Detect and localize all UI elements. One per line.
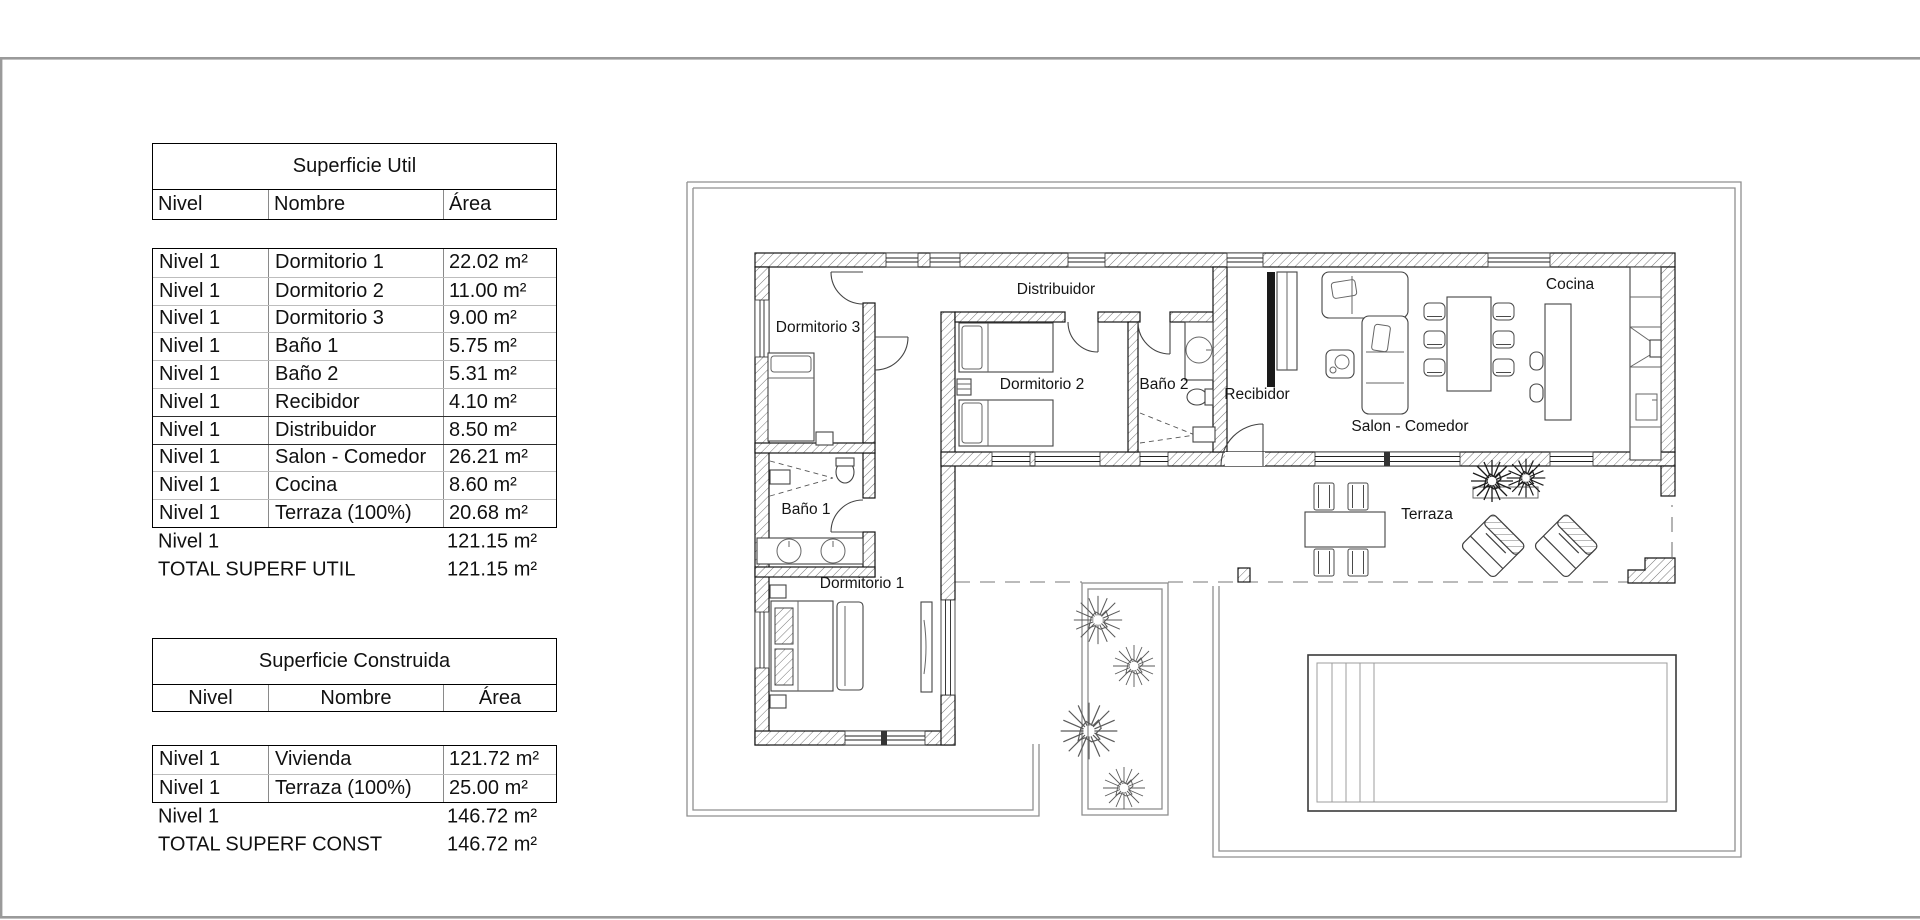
subtotal-label: Nivel 1: [158, 805, 219, 828]
sofa: [1322, 272, 1408, 414]
table-body: Nivel 1Dormitorio 122.02 m²Nivel 1Dormit…: [152, 248, 557, 528]
table-cell: Vivienda: [268, 746, 443, 774]
room-label-dormitorio-3: Dormitorio 3: [776, 319, 860, 336]
table-cell: 22.02 m²: [443, 249, 556, 277]
superficie-construida-table: Superficie Construida Nivel Nombre Área …: [152, 638, 557, 859]
table-title: Superficie Util: [152, 143, 557, 190]
table-cell: Cocina: [268, 472, 443, 499]
total-label: TOTAL SUPERF CONST: [158, 833, 382, 856]
table-header: Nivel Nombre Área: [152, 685, 557, 712]
table-row: Nivel 1Dormitorio 211.00 m²: [153, 277, 556, 305]
total-row: TOTAL SUPERF CONST 146.72 m²: [152, 831, 557, 859]
table-cell: Nivel 1: [153, 249, 268, 277]
table-row: Nivel 1Cocina8.60 m²: [153, 471, 556, 499]
column-header-nivel: Nivel: [153, 685, 268, 711]
table-cell: Dormitorio 1: [268, 249, 443, 277]
table-header: Nivel Nombre Área: [152, 190, 557, 220]
table-cell: 121.72 m²: [443, 746, 556, 774]
table-cell: Nivel 1: [153, 775, 268, 802]
column-header-nombre: Nombre: [268, 190, 443, 219]
table-cell: Nivel 1: [153, 278, 268, 305]
table-cell: Nivel 1: [153, 333, 268, 360]
table-cell: Distribuidor: [268, 417, 443, 444]
room-label-bano-1: Baño 1: [781, 501, 830, 518]
recibidor-furniture: [1267, 272, 1297, 387]
table-row: Nivel 1Distribuidor8.50 m²: [153, 416, 556, 444]
pool: [1308, 655, 1676, 811]
table-row: Nivel 1Baño 15.75 m²: [153, 332, 556, 360]
table-cell: 9.00 m²: [443, 306, 556, 333]
room-label-dormitorio-2: Dormitorio 2: [1000, 376, 1084, 393]
table-cell: 11.00 m²: [443, 278, 556, 305]
subtotal-label: Nivel 1: [158, 530, 219, 553]
table-cell: Nivel 1: [153, 500, 268, 527]
table-cell: Recibidor: [268, 389, 443, 416]
planter: [1061, 583, 1168, 815]
table-cell: Nivel 1: [153, 306, 268, 333]
total-value: 146.72 m²: [447, 833, 537, 856]
table-cell: Terraza (100%): [268, 775, 443, 802]
terrace-table: [1305, 483, 1385, 576]
table-cell: Salon - Comedor: [268, 445, 443, 472]
room-label-bano-2: Baño 2: [1139, 376, 1188, 393]
table-cell: Nivel 1: [153, 361, 268, 388]
table-cell: 8.50 m²: [443, 417, 556, 444]
room-label-salon-comedor: Salon - Comedor: [1351, 418, 1468, 435]
table-cell: Terraza (100%): [268, 500, 443, 527]
table-title: Superficie Construida: [152, 638, 557, 685]
table-row: Nivel 1Dormitorio 39.00 m²: [153, 305, 556, 333]
room-label-terraza: Terraza: [1401, 506, 1453, 523]
superficie-util-table: Superficie Util Nivel Nombre Área Nivel …: [152, 143, 557, 584]
room-label-distribuidor: Distribuidor: [1017, 281, 1095, 298]
subtotal-value: 121.15 m²: [447, 530, 537, 553]
column-header-nivel: Nivel: [153, 190, 268, 219]
table-cell: Baño 2: [268, 361, 443, 388]
table-row: Nivel 1Baño 25.31 m²: [153, 360, 556, 388]
bed-dormitorio-1: [770, 585, 932, 708]
total-value: 121.15 m²: [447, 558, 537, 581]
table-cell: Dormitorio 3: [268, 306, 443, 333]
kitchen-island: [1530, 304, 1571, 420]
table-cell: Baño 1: [268, 333, 443, 360]
table-cell: Dormitorio 2: [268, 278, 443, 305]
dining-table: [1424, 297, 1514, 391]
table-cell: Nivel 1: [153, 389, 268, 416]
column-header-area: Área: [443, 685, 556, 711]
table-cell: 25.00 m²: [443, 775, 556, 802]
table-cell: 5.75 m²: [443, 333, 556, 360]
subtotal-value: 146.72 m²: [447, 805, 537, 828]
table-cell: 4.10 m²: [443, 389, 556, 416]
table-cell: Nivel 1: [153, 472, 268, 499]
kitchen-counter: [1630, 267, 1661, 460]
table-cell: 8.60 m²: [443, 472, 556, 499]
room-label-dormitorio-1: Dormitorio 1: [820, 575, 904, 592]
room-label-cocina: Cocina: [1546, 276, 1595, 293]
column-header-nombre: Nombre: [268, 685, 443, 711]
table-row: Nivel 1Terraza (100%)20.68 m²: [153, 499, 556, 527]
floor-lamp: [1326, 350, 1354, 378]
table-cell: Nivel 1: [153, 445, 268, 472]
column-header-area: Área: [443, 190, 556, 219]
table-cell: Nivel 1: [153, 417, 268, 444]
lounge-chairs: [1460, 513, 1598, 578]
table-row: Nivel 1Dormitorio 122.02 m²: [153, 249, 556, 277]
table-cell: 26.21 m²: [443, 445, 556, 472]
bed-dormitorio-3: [768, 353, 833, 445]
table-cell: 5.31 m²: [443, 361, 556, 388]
table-row: Nivel 1Terraza (100%)25.00 m²: [153, 774, 556, 802]
table-cell: Nivel 1: [153, 746, 268, 774]
table-row: Nivel 1Recibidor4.10 m²: [153, 388, 556, 416]
table-row: Nivel 1Salon - Comedor26.21 m²: [153, 444, 556, 472]
table-row: Nivel 1Vivienda121.72 m²: [153, 746, 556, 774]
level-subtotal-row: Nivel 1 146.72 m²: [152, 803, 557, 831]
table-cell: 20.68 m²: [443, 500, 556, 527]
drawing-sheet: Dormitorio 3DistribuidorDormitorio 2Baño…: [0, 0, 1920, 920]
total-row: TOTAL SUPERF UTIL 121.15 m²: [152, 556, 557, 584]
table-body: Nivel 1Vivienda121.72 m²Nivel 1Terraza (…: [152, 745, 557, 803]
total-label: TOTAL SUPERF UTIL: [158, 558, 355, 581]
level-subtotal-row: Nivel 1 121.15 m²: [152, 528, 557, 556]
room-label-recibidor: Recibidor: [1224, 386, 1289, 403]
